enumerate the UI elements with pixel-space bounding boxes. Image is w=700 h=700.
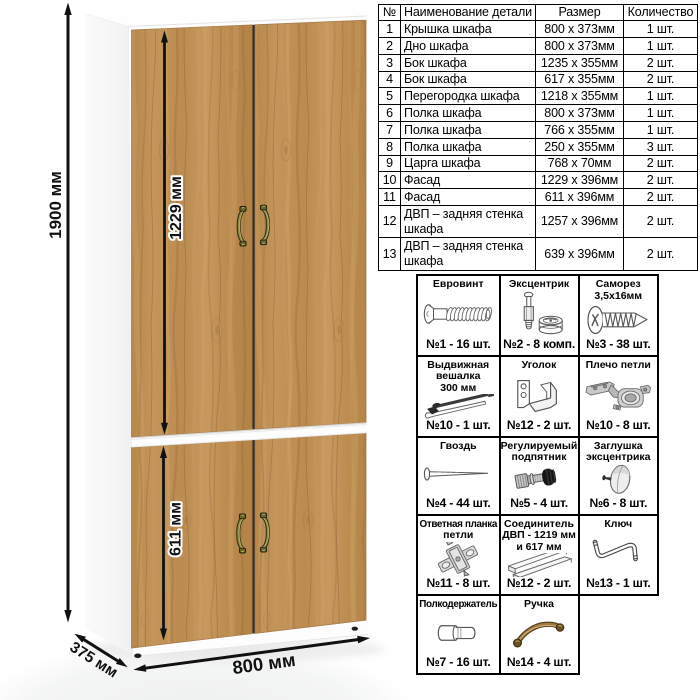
svg-text:1229 мм: 1229 мм (168, 176, 185, 240)
svg-text:1900 мм: 1900 мм (46, 171, 65, 239)
svg-text:611 мм: 611 мм (168, 502, 185, 556)
